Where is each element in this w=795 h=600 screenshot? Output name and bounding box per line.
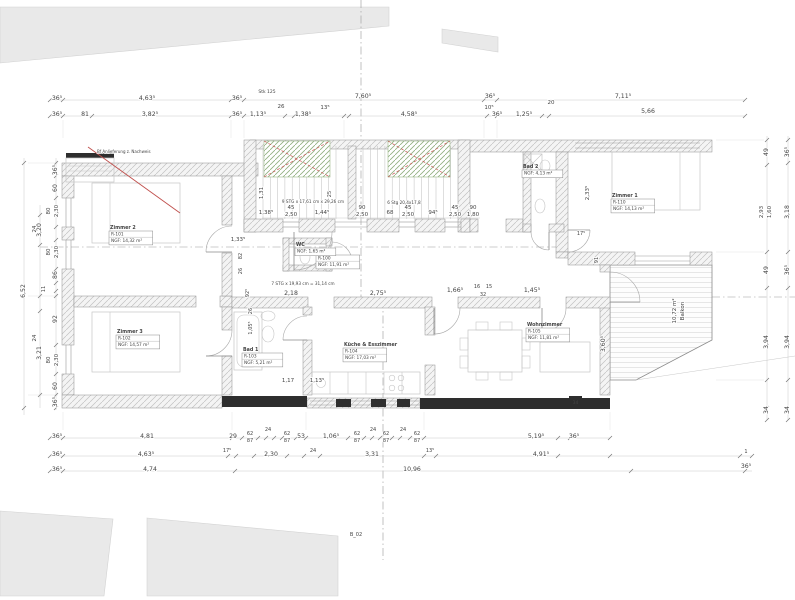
room-info-line: NGF: 1,65 m²	[297, 249, 326, 255]
dim-label: 36⁵	[232, 95, 243, 102]
dim-label: 24	[400, 427, 406, 433]
dim-label: 1,13⁵	[310, 377, 324, 384]
door-arc	[531, 232, 549, 250]
room-info-line: R-102	[118, 336, 131, 342]
room-label-wohnzimmer: WohnzimmerR-105NGF: 11,81 m²	[526, 322, 570, 342]
room-info-line: R-101	[111, 232, 124, 238]
dim-label: 13⁵	[320, 104, 329, 111]
existing-wall-segment	[371, 399, 386, 407]
room-label-zimmer-1: Zimmer 1R-110NGF: 14,13 m²	[611, 193, 655, 213]
dim-label: 5,66	[641, 108, 655, 115]
chair	[476, 372, 488, 380]
dim-label: 29	[229, 433, 237, 440]
room-label-zimmer-2: Zimmer 2R-101NGF: 14,32 m²	[109, 225, 153, 245]
existing-wall-segment	[222, 396, 307, 407]
dim-label: 2,50	[449, 212, 462, 218]
dim-label: 60	[52, 184, 59, 192]
room-info-line: R-110	[613, 200, 626, 206]
dim-label: 82	[238, 253, 244, 259]
dim-label: Stk 125	[258, 89, 275, 95]
dim-label: 3,60⁵	[600, 335, 607, 352]
dim-label: 4,58⁵	[401, 111, 418, 118]
dim-label: 3,31	[365, 451, 379, 458]
room-info-line: NGF: 5,21 m²	[244, 360, 273, 366]
dim-label: 26	[238, 268, 244, 274]
dim-label: 6 Stg 20,4x17,8	[387, 200, 421, 205]
door-arc	[206, 330, 232, 356]
room-labels: Zimmer 2R-101NGF: 14,32 m²Zimmer 3R-102N…	[109, 164, 655, 367]
room-info-line: NGF: 14,57 m²	[118, 342, 149, 348]
dining-table	[468, 330, 522, 372]
dim-label: 87	[414, 438, 420, 444]
dim-label: 92	[52, 315, 59, 323]
dim-label: 87	[383, 438, 389, 444]
dim-label: 4,74	[143, 466, 157, 473]
dim-label: 36⁵	[52, 451, 63, 458]
dim-label: 62	[247, 431, 253, 437]
dim-label: 80	[46, 207, 52, 214]
chair	[500, 322, 512, 330]
room-name: Wohnzimmer	[527, 322, 563, 328]
dim-label: 36⁵	[52, 433, 63, 440]
wall-segment	[367, 219, 399, 232]
room-info-line: NGF: 4,13 m²	[524, 171, 553, 177]
dim-label: 1,13⁵	[250, 111, 267, 118]
red-annotation-line	[88, 147, 180, 213]
wall-segment	[462, 140, 712, 152]
door-arc	[434, 308, 460, 334]
wall-segment	[549, 224, 564, 232]
room-info-line: R-103	[244, 354, 257, 360]
wall-segment	[74, 296, 196, 307]
dim-label: 10,96	[403, 466, 421, 473]
room-info-line: R-105	[528, 329, 541, 335]
dim-label: 62	[284, 431, 290, 437]
dim-label: 1,17	[282, 378, 295, 384]
dim-label: 4,63⁵	[138, 451, 155, 458]
dim-label: 92⁵	[245, 289, 251, 297]
dim-label: 13⁵	[426, 448, 434, 454]
room-label-k-che-esszimmer: Küche & EsszimmerR-104NGF: 17,03 m²	[343, 342, 398, 362]
dim-label: 1,45⁵	[524, 287, 541, 294]
dim-label: 3,21	[36, 346, 43, 360]
dim-label: 2,50	[356, 212, 369, 218]
dim-label: 1,44⁵	[315, 209, 329, 216]
neighbour-building-bottom-center	[147, 518, 338, 596]
dim-label: 3,94	[763, 335, 770, 349]
existing-wall-segment	[397, 399, 410, 407]
wall-segment	[244, 140, 256, 232]
dim-label: 3,18	[784, 205, 791, 219]
wall-segment	[222, 307, 232, 330]
dim-label: 90	[470, 205, 477, 211]
dim-label: 34	[573, 400, 579, 406]
dim-label: 7,11⁵	[615, 93, 632, 100]
floor-plan-sheet: Stk 12536⁵4,63⁵36⁵7,60⁵36⁵7,11⁵36⁵813,82…	[0, 0, 795, 600]
dim-label: 49	[763, 148, 770, 156]
dim-label: 3,20	[36, 223, 43, 237]
dim-label: 45	[452, 205, 459, 211]
wall-segment	[62, 269, 74, 345]
stove-burner	[398, 385, 404, 391]
dim-label: 17⁵	[223, 448, 231, 454]
room-info-line: NGF: 11,91 m²	[318, 262, 349, 268]
dim-label: 87	[284, 438, 290, 444]
dim-label: 2,30	[54, 204, 60, 217]
dim-label: 9 STG x 17,61 cm x 29,26 cm	[282, 199, 344, 204]
dim-label: 60	[52, 382, 59, 390]
dim-label: 2,50	[285, 212, 298, 218]
dim-label: 36⁵	[232, 111, 243, 118]
wall-segment	[303, 307, 312, 315]
dim-label: 91	[594, 257, 600, 263]
wall-segment	[506, 219, 523, 232]
dim-label: 90	[359, 205, 366, 211]
wall-segment	[425, 307, 435, 335]
dim-label: 4,91⁵	[533, 451, 550, 458]
dim-label: 86	[52, 271, 59, 279]
dim-label: 2,75⁵	[370, 290, 387, 297]
dim-label: 24	[265, 427, 271, 433]
dim-label: 87	[247, 438, 253, 444]
wall-segment	[62, 163, 258, 176]
dim-label: 1,38⁵	[259, 209, 273, 216]
dim-label: 20	[548, 100, 555, 106]
room-info-line: NGF: 11,81 m²	[528, 335, 559, 341]
wall-segment	[62, 176, 74, 198]
wall-segment	[222, 253, 232, 296]
wall-segment	[600, 265, 610, 272]
dim-label: 10,72 m²	[671, 298, 678, 323]
neighbour-building-bottom-left	[0, 511, 113, 596]
wall-segment	[283, 238, 289, 271]
wall-segment	[523, 224, 531, 232]
dim-label: 1,31	[259, 187, 265, 199]
floor-plan-drawing: Stk 12536⁵4,63⁵36⁵7,60⁵36⁵7,11⁵36⁵813,82…	[0, 0, 795, 600]
wall-segment	[299, 219, 335, 232]
wall-segment	[334, 297, 432, 308]
dim-label: 34	[784, 406, 791, 414]
dim-label: 2,33⁵	[584, 186, 591, 200]
dim-label: 3,82⁵	[142, 111, 159, 118]
chair	[476, 322, 488, 330]
dim-label: 2,30	[264, 451, 278, 458]
door-swings	[206, 226, 640, 356]
wall-segment	[556, 152, 568, 252]
wall-segment	[568, 252, 635, 265]
wall-segment	[415, 219, 445, 232]
wall-segment	[222, 356, 232, 395]
dim-label: 15	[486, 284, 492, 290]
dim-label: 62	[414, 431, 420, 437]
dim-label: 80	[46, 356, 52, 363]
chair	[522, 356, 530, 368]
dim-label: 62	[354, 431, 360, 437]
dim-label: 53	[297, 433, 305, 440]
dim-label: 1,80	[467, 212, 480, 218]
dim-label: 10⁵	[484, 104, 493, 111]
room-info-line: NGF: 17,03 m²	[345, 355, 376, 361]
dim-label: 7,60⁵	[355, 93, 372, 100]
wall-segment	[283, 238, 332, 244]
dim-label: 36⁵	[52, 111, 63, 118]
dim-label: 36⁵	[784, 264, 791, 275]
dim-label: 32	[480, 292, 486, 298]
room-info-line: NGF: 14,13 m²	[613, 206, 644, 212]
room-name: Bad 1	[243, 347, 258, 353]
dim-label: 2,50	[402, 212, 415, 218]
dim-label: Bf Anlieferung z. Nachweis	[97, 149, 151, 154]
dim-label: 4,63⁵	[139, 95, 156, 102]
room-info-line: R-104	[345, 349, 358, 355]
dim-label: 2,30	[54, 245, 60, 258]
wall-segment	[244, 219, 283, 232]
dim-label: 1	[744, 449, 747, 455]
wall-segment	[232, 297, 308, 308]
balcony-deck	[610, 265, 712, 380]
wall-segment	[690, 252, 712, 265]
wall-segment	[222, 176, 232, 225]
wall-segment	[62, 395, 222, 408]
dim-label: 94⁵	[428, 209, 437, 216]
door-arc	[206, 226, 232, 252]
dim-label: 16	[474, 284, 480, 290]
dim-label: 36⁵	[485, 93, 496, 100]
dim-label: 2,30	[54, 353, 60, 366]
door-arc	[283, 316, 307, 340]
dim-label: Balkon	[680, 301, 686, 320]
dim-label: 6,52	[20, 284, 27, 298]
room-name: Bad 2	[523, 164, 538, 170]
room-name: Zimmer 1	[612, 193, 638, 199]
dim-label: 2,18	[284, 290, 298, 297]
dim-label: 1,60	[767, 205, 773, 218]
chair	[460, 338, 468, 350]
dim-label: 87	[354, 438, 360, 444]
wall-segment	[458, 297, 540, 308]
dim-label: 1,66⁵	[447, 287, 464, 294]
dim-label: 26	[278, 104, 285, 110]
dim-label: 1,25⁵	[516, 111, 533, 118]
dim-label: 36⁵	[52, 95, 63, 102]
neighbour-building-top	[0, 7, 389, 63]
dim-label: 36⁵	[52, 466, 63, 473]
wall-segment	[303, 340, 312, 395]
dim-label: 2,93	[759, 205, 765, 218]
dim-label: 25	[327, 191, 333, 197]
room-name: Zimmer 3	[117, 329, 143, 335]
dim-label: 17⁵	[577, 231, 585, 237]
dim-label: 45	[288, 205, 295, 211]
stove-burner	[389, 375, 395, 381]
wall-segment	[556, 252, 568, 258]
dim-label: 36⁵	[52, 396, 59, 407]
dim-label: 1,33⁵	[231, 236, 245, 243]
dim-label: 49	[763, 266, 770, 274]
dim-label: 36⁵	[784, 146, 791, 157]
wall-segment	[220, 296, 232, 307]
dim-label: 26	[248, 308, 254, 314]
dim-label: 1,05⁵	[248, 321, 254, 334]
wall-segment	[348, 146, 356, 219]
toilet	[262, 326, 274, 342]
dim-label: 36⁵	[52, 164, 59, 175]
wall-segment	[461, 219, 470, 232]
dim-label: 34	[763, 406, 770, 414]
wall-segment	[470, 219, 478, 232]
dim-label: 24	[32, 334, 38, 341]
dim-label: 45	[405, 205, 412, 211]
dim-label: 1,38⁵	[295, 111, 312, 118]
dim-label: 7 STG x 19,93 cm = 31,14 cm	[271, 281, 334, 286]
wall-segment	[62, 227, 74, 240]
dim-label: 24	[310, 448, 316, 454]
chair	[460, 356, 468, 368]
wall-segment	[566, 297, 610, 308]
stove-burner	[398, 375, 404, 381]
dim-label: 36⁵	[741, 463, 752, 470]
room-label-zimmer-3: Zimmer 3R-102NGF: 14,57 m²	[116, 329, 160, 349]
sink	[261, 311, 275, 321]
room-info-line: R-100	[318, 256, 331, 262]
dim-label: 4,81	[140, 433, 154, 440]
room-name: Zimmer 2	[110, 225, 136, 231]
dim-label: 81	[81, 111, 89, 118]
dim-label: 80	[46, 248, 52, 255]
dim-label: 36⁵	[569, 433, 580, 440]
chair	[500, 372, 512, 380]
dim-label: 68	[387, 210, 394, 216]
room-name: WC	[296, 242, 305, 248]
dim-label: 62	[383, 431, 389, 437]
dim-label: 5,19⁵	[528, 433, 545, 440]
room-name: Küche & Esszimmer	[344, 342, 398, 348]
wall-segment	[425, 365, 435, 395]
dim-label: B_02	[350, 532, 362, 538]
dim-label: 1,06⁵	[323, 433, 340, 440]
neighbour-building-top-right	[442, 29, 498, 52]
room-label-bad-1: Bad 1R-103NGF: 5,21 m²	[242, 347, 283, 367]
wall-segment	[62, 374, 74, 395]
existing-wall-segment	[336, 399, 351, 407]
dim-label: 36⁵	[492, 111, 503, 118]
stove-burner	[389, 385, 395, 391]
red-annotation	[88, 147, 180, 213]
dim-label: 24	[370, 427, 376, 433]
dim-label: 11	[41, 286, 47, 292]
dim-label: 3,94	[784, 335, 791, 349]
room-info-line: NGF: 14,32 m²	[111, 238, 142, 244]
toilet	[535, 199, 545, 213]
sofa	[540, 342, 590, 372]
